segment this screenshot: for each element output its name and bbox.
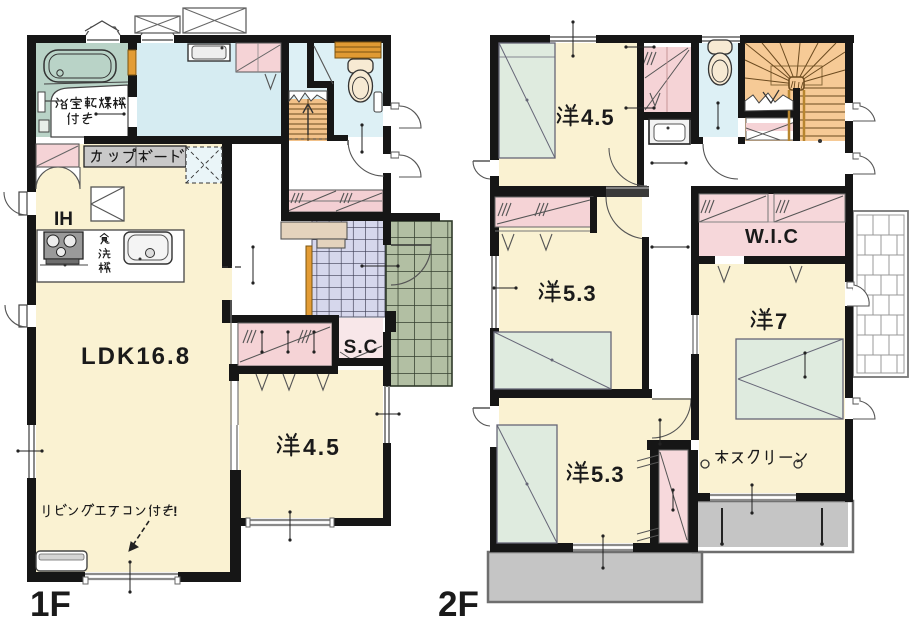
- svg-text:S.C: S.C: [344, 337, 379, 358]
- svg-text:LDK16.8: LDK16.8: [81, 343, 191, 370]
- svg-text:2F: 2F: [438, 585, 479, 624]
- svg-text:5.3: 5.3: [591, 462, 625, 487]
- svg-text:4.5: 4.5: [303, 434, 341, 460]
- svg-text:4.5: 4.5: [581, 105, 615, 130]
- svg-text:7: 7: [775, 309, 787, 334]
- svg-text:!: !: [173, 503, 178, 519]
- svg-text:IH: IH: [54, 209, 73, 230]
- svg-text:W.I.C: W.I.C: [745, 226, 799, 248]
- svg-text:1F: 1F: [30, 585, 71, 624]
- svg-text:5.3: 5.3: [563, 281, 597, 306]
